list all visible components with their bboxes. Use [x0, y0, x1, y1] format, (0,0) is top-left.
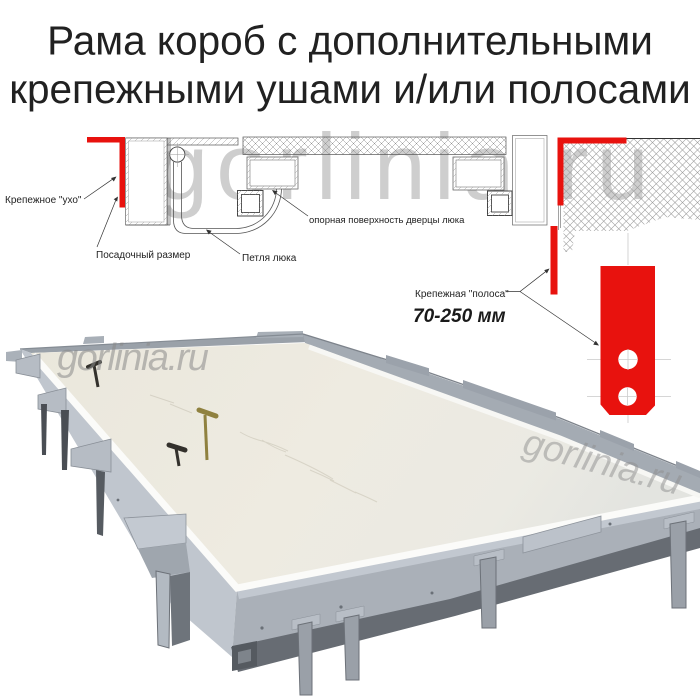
svg-text:опорная поверхность дверцы люк: опорная поверхность дверцы люка	[309, 215, 465, 226]
svg-text:крепежными ушами и/или полосам: крепежными ушами и/или полосами	[9, 66, 690, 112]
svg-text:Крепежная "полоса": Крепежная "полоса"	[415, 289, 509, 300]
svg-text:Рама короб с дополнительными: Рама короб с дополнительными	[47, 18, 653, 64]
svg-text:gorlinia.ru: gorlinia.ru	[57, 337, 209, 379]
svg-text:70-250 мм: 70-250 мм	[413, 306, 506, 327]
svg-text:Посадочный размер: Посадочный размер	[96, 250, 191, 261]
svg-text:Крепежное "ухо": Крепежное "ухо"	[5, 195, 82, 206]
svg-text:Петля люка: Петля люка	[242, 253, 297, 264]
